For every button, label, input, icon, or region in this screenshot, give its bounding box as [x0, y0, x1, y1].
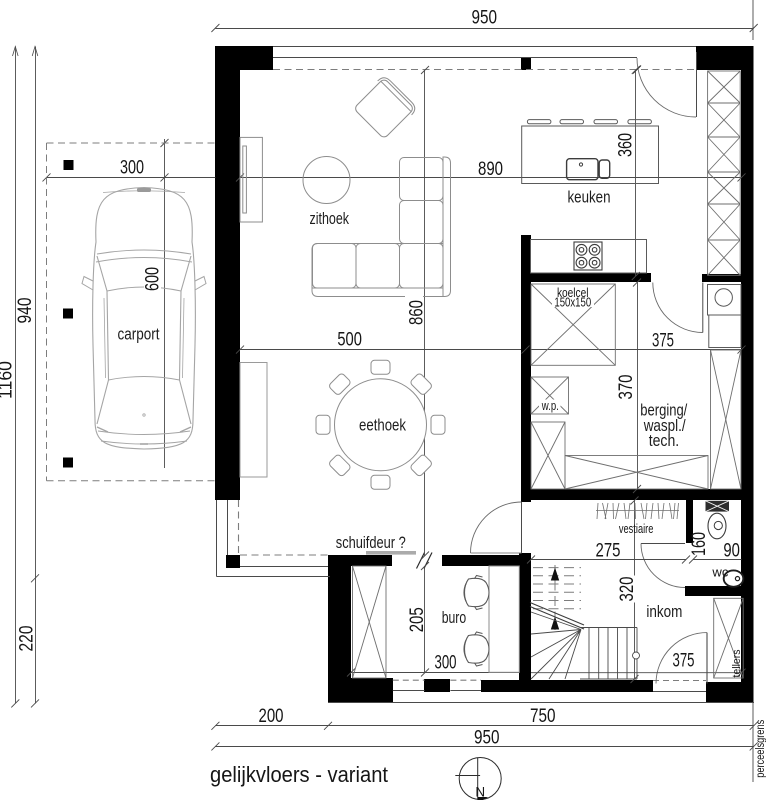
svg-text:320: 320 — [617, 577, 638, 602]
svg-text:500: 500 — [337, 330, 362, 351]
svg-text:zithoek: zithoek — [310, 209, 350, 228]
svg-text:950: 950 — [472, 8, 498, 29]
svg-text:950: 950 — [474, 728, 500, 749]
svg-text:keuken: keuken — [568, 188, 611, 207]
svg-text:750: 750 — [530, 706, 556, 727]
svg-text:inkom: inkom — [646, 602, 682, 621]
svg-text:vestiaire: vestiaire — [619, 522, 654, 536]
svg-text:160: 160 — [689, 532, 710, 556]
svg-text:tech.: tech. — [649, 431, 680, 450]
svg-text:150x150: 150x150 — [554, 295, 591, 309]
svg-text:375: 375 — [673, 651, 695, 672]
svg-text:wc: wc — [711, 565, 728, 579]
svg-text:tellers: tellers — [731, 649, 743, 677]
svg-text:275: 275 — [596, 540, 621, 561]
svg-text:300: 300 — [435, 653, 457, 674]
svg-text:buro: buro — [442, 608, 467, 627]
svg-text:gelijkvloers - variant: gelijkvloers - variant — [210, 762, 389, 787]
svg-text:300: 300 — [120, 157, 144, 178]
svg-text:940: 940 — [15, 298, 36, 324]
svg-text:600: 600 — [143, 267, 164, 291]
svg-text:schuifdeur ?: schuifdeur ? — [336, 533, 406, 552]
svg-text:w.p.: w.p. — [541, 399, 559, 413]
svg-text:360: 360 — [616, 133, 637, 157]
svg-text:890: 890 — [478, 159, 503, 180]
svg-text:205: 205 — [407, 607, 428, 632]
svg-text:370: 370 — [616, 375, 637, 400]
svg-text:eethoek: eethoek — [359, 416, 406, 435]
svg-text:860: 860 — [407, 300, 428, 325]
svg-text:200: 200 — [259, 706, 284, 727]
svg-text:375: 375 — [652, 331, 674, 352]
svg-text:carport: carport — [118, 325, 160, 344]
svg-text:90: 90 — [723, 540, 740, 561]
svg-text:220: 220 — [17, 626, 38, 652]
svg-text:1160: 1160 — [0, 361, 17, 399]
svg-text:perceelsgrens: perceelsgrens — [755, 720, 766, 778]
